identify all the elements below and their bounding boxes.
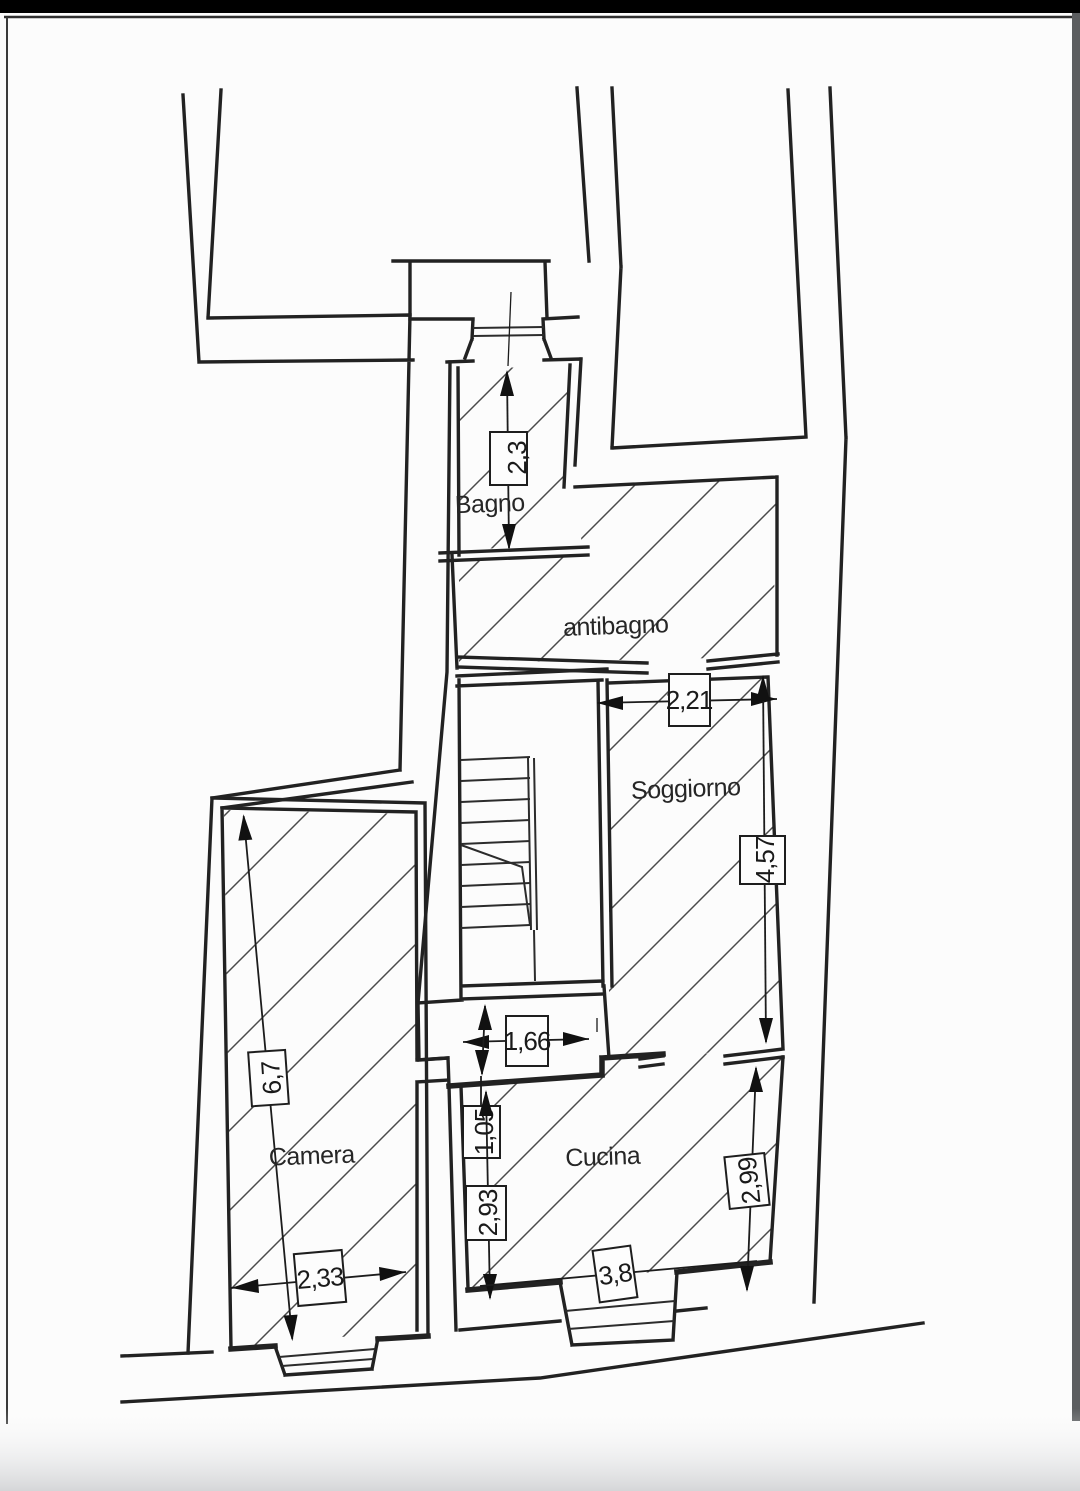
stairwell [418, 669, 612, 1003]
dim-passage-width-value: 1,66 [504, 1026, 551, 1056]
camera-window-panes [279, 1349, 375, 1366]
frame-right-band [1072, 13, 1080, 1421]
room-label-bagno: Bagno [454, 489, 525, 519]
stair-treads [461, 757, 530, 928]
bottom-fade [0, 1408, 1080, 1491]
room-label-soggiorno: Soggiorno [631, 773, 741, 805]
dim-camera-height-value: 6,7 [255, 1060, 287, 1096]
bay-window-panes [473, 327, 544, 336]
dim-cucina-height-value: 2,93 [473, 1189, 503, 1236]
top-black-bar [0, 0, 1080, 13]
dim-cucina-width-value: 3,8 [596, 1257, 634, 1291]
dim-camera-width-value: 2,33 [295, 1261, 345, 1295]
cucina-window-panes [565, 1301, 675, 1329]
dim-soggiorno-width-value: 2,21 [666, 685, 713, 715]
dim-cucina-right-height-value: 2,99 [732, 1156, 767, 1206]
bay-window-top [393, 261, 578, 358]
room-label-antibagno: antibagno [563, 610, 669, 642]
dim-soggiorno-height-value: 4,57 [750, 836, 780, 883]
room-label-cucina: Cucina [565, 1142, 641, 1173]
room-label-camera: Camera [268, 1140, 355, 1171]
floor-plan-drawing: 2,3 2,21 4,57 6,7 2,33 1,6 [0, 0, 1080, 1491]
dim-bagno-height-value: 2,3 [502, 441, 532, 475]
stair-railing [528, 758, 537, 981]
floor-plan-page: 2,3 2,21 4,57 6,7 2,33 1,6 [0, 0, 1080, 1491]
